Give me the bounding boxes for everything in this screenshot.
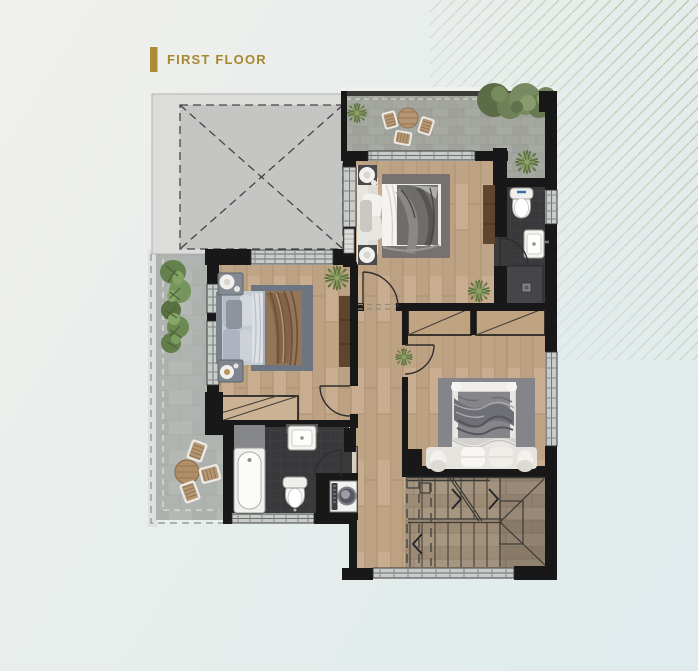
svg-text:FIRST FLOOR: FIRST FLOOR xyxy=(167,52,267,67)
